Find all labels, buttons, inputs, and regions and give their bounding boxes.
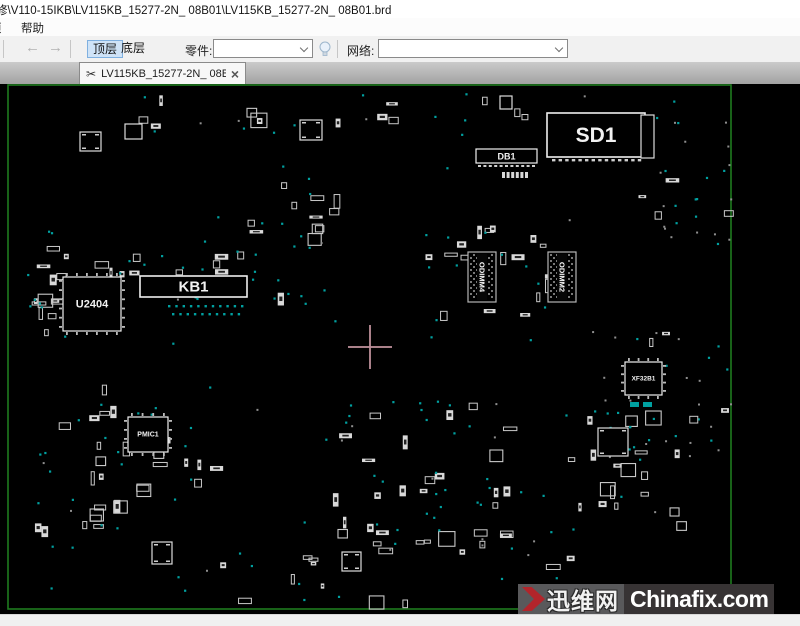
status-bar	[0, 614, 800, 626]
chevron-down-icon	[300, 44, 308, 52]
svg-text:U2404: U2404	[76, 299, 109, 311]
component-ic[interactable]	[300, 120, 322, 140]
back-arrow-icon[interactable]: ←	[25, 39, 40, 57]
title-bar: 修\V110-15IKB\LV115KB_15277-2N_ 08B01\LV1…	[0, 0, 800, 18]
component-odimm4[interactable]: ODIMM4	[468, 252, 496, 302]
chevron-down-icon	[555, 44, 563, 52]
component-odimm2[interactable]: ODIMM2	[548, 252, 576, 302]
svg-text:DB1: DB1	[497, 152, 515, 162]
lightbulb-icon[interactable]	[318, 41, 332, 58]
crosshair	[348, 325, 392, 369]
svg-text:KB1: KB1	[178, 279, 208, 296]
menu-item-partial[interactable]: 项	[0, 20, 2, 36]
toolbar-separator	[70, 40, 71, 58]
close-icon[interactable]: ×	[231, 67, 239, 81]
tab-label: LV115KB_15277-2N_ 08B...	[101, 68, 226, 80]
watermark-left: 迅维网	[518, 584, 624, 614]
svg-text:PMIC1: PMIC1	[137, 432, 159, 439]
bottom-layer-button[interactable]: 底层	[116, 40, 150, 58]
window-title: 修\V110-15IKB\LV115KB_15277-2N_ 08B01\LV1…	[0, 2, 391, 18]
tab-bar: ✂ LV115KB_15277-2N_ 08B... ×	[0, 62, 800, 84]
component-xf32b1[interactable]: XF32B1	[621, 358, 666, 399]
watermark: 迅维网 Chinafix.com	[518, 584, 774, 614]
component-ic[interactable]	[598, 428, 628, 456]
component-ic[interactable]	[641, 115, 654, 158]
menu-bar: 项 帮助	[0, 18, 800, 36]
svg-text:XF32B1: XF32B1	[632, 376, 656, 383]
net-label: 网络:	[347, 42, 374, 59]
forward-arrow-icon[interactable]: →	[48, 39, 63, 57]
component-db1[interactable]: DB1	[476, 149, 537, 163]
svg-text:ODIMM2: ODIMM2	[558, 262, 567, 292]
toolbar: ← → 顶层 底层 零件: 网络:	[0, 36, 800, 62]
component-ic[interactable]	[342, 552, 361, 571]
menu-item-help[interactable]: 帮助	[18, 20, 47, 36]
part-select[interactable]	[213, 39, 313, 58]
component-kb1[interactable]: KB1	[140, 276, 247, 297]
component-pmic1[interactable]: PMIC1	[124, 413, 172, 456]
chevron-logo-icon	[522, 587, 545, 611]
svg-text:SD1: SD1	[576, 124, 617, 147]
board-canvas[interactable]: SD1DB1KB1U2404PMIC1XF32B1ODIMM4ODIMM2 迅维…	[0, 84, 800, 614]
toolbar-separator	[3, 40, 4, 58]
board-texture	[27, 93, 733, 609]
component-u2404[interactable]: U2404	[59, 273, 125, 335]
component-ic[interactable]	[500, 96, 512, 109]
part-label: 零件:	[185, 42, 212, 59]
board-svg[interactable]: SD1DB1KB1U2404PMIC1XF32B1ODIMM4ODIMM2	[0, 84, 800, 614]
tab-board-file[interactable]: ✂ LV115KB_15277-2N_ 08B... ×	[79, 62, 246, 84]
net-select[interactable]	[378, 39, 568, 58]
component-sd1[interactable]: SD1	[547, 113, 645, 157]
watermark-site-en: Chinafix.com	[624, 584, 774, 614]
component-ic[interactable]	[125, 124, 142, 139]
component-ic[interactable]	[80, 132, 101, 151]
watermark-site-cn: 迅维网	[547, 582, 619, 614]
toolbar-separator	[337, 40, 338, 58]
svg-text:ODIMM4: ODIMM4	[478, 262, 487, 293]
component-ic[interactable]	[152, 542, 172, 564]
scissors-icon: ✂	[86, 67, 96, 81]
